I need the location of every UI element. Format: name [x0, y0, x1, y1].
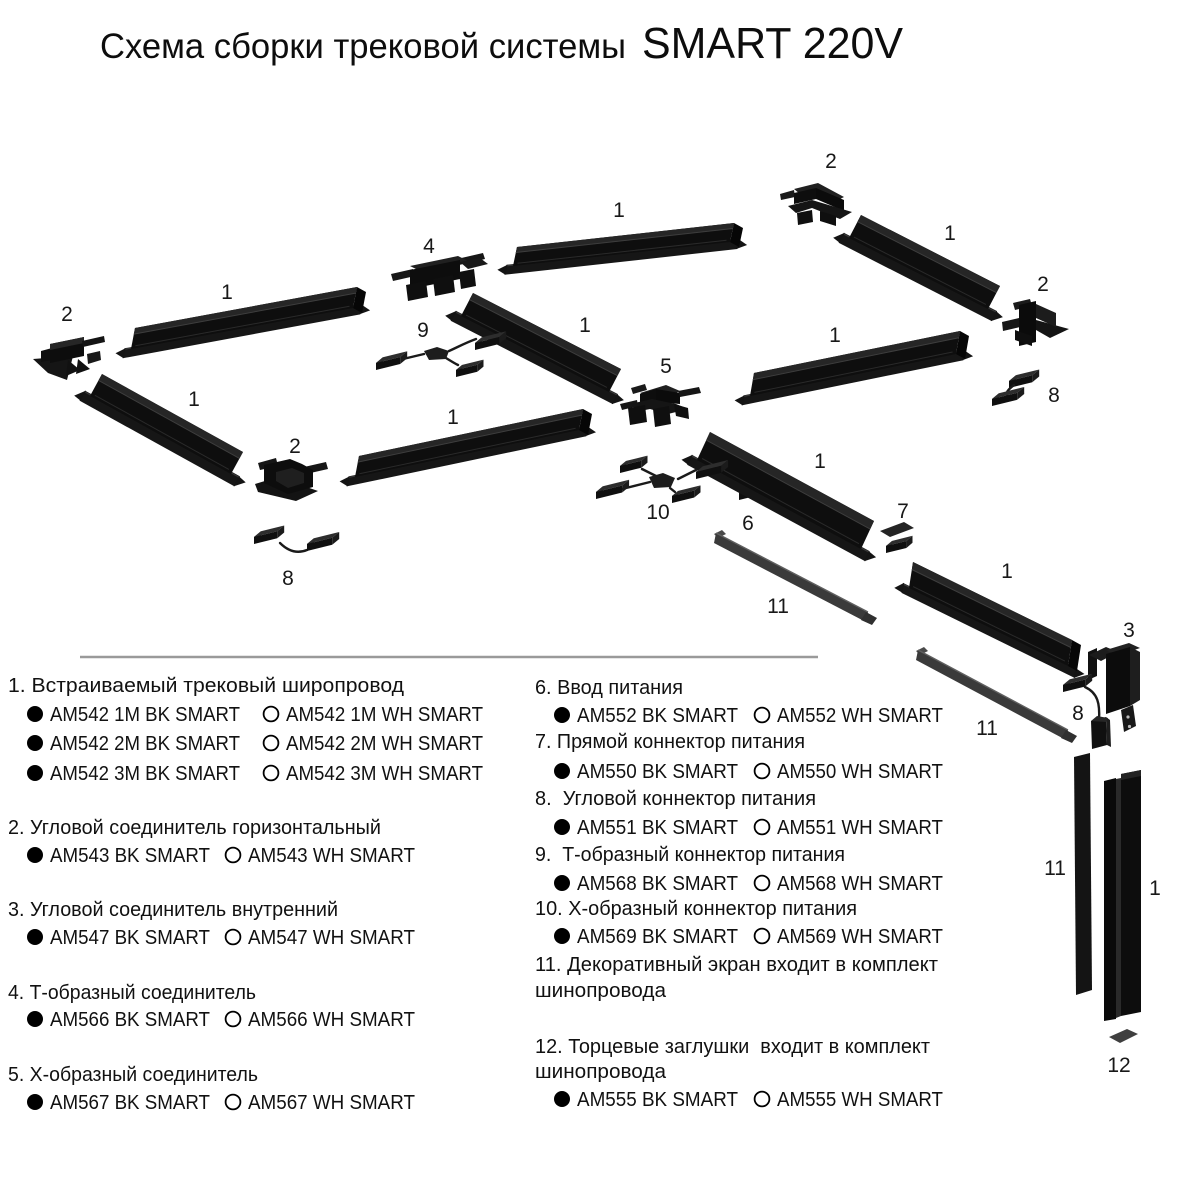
svg-text:AM542 3M BK SMART: AM542 3M BK SMART [50, 763, 240, 785]
svg-text:AM555 BK SMART: AM555 BK SMART [577, 1089, 738, 1111]
svg-text:1: 1 [221, 281, 233, 304]
svg-text:10: 10 [646, 501, 669, 524]
svg-text:2: 2 [1037, 273, 1049, 296]
svg-text:5: 5 [660, 355, 672, 378]
svg-text:AM569 WH SMART: AM569 WH SMART [777, 926, 943, 948]
svg-text:AM566 BK SMART: AM566 BK SMART [50, 1009, 210, 1031]
svg-text:2: 2 [289, 435, 301, 458]
svg-text:8: 8 [1072, 702, 1084, 725]
svg-text:1: 1 [814, 450, 826, 473]
svg-text:10. Х-образный коннектор питан: 10. Х-образный коннектор питания [535, 898, 857, 920]
svg-text:6. Ввод питания: 6. Ввод питания [535, 677, 683, 699]
svg-text:9. Т-образный коннектор питан: 9. Т-образный коннектор питания [535, 844, 845, 866]
svg-text:AM566 WH SMART: AM566 WH SMART [248, 1009, 415, 1031]
svg-text:4: 4 [423, 235, 435, 258]
svg-text:7. Прямой коннектор питания: 7. Прямой коннектор питания [535, 731, 805, 753]
svg-text:AM567 BK SMART: AM567 BK SMART [50, 1092, 210, 1114]
svg-text:1: 1 [188, 388, 200, 411]
svg-text:1: 1 [447, 406, 459, 429]
svg-text:11: 11 [767, 595, 789, 618]
svg-text:8: 8 [1048, 384, 1060, 407]
svg-text:AM543 WH SMART: AM543 WH SMART [248, 845, 415, 867]
svg-text:8: 8 [282, 567, 294, 590]
svg-text:11. Декоративный экран входит: 11. Декоративный экран входит в комплект [535, 954, 938, 976]
svg-text:AM547 BK SMART: AM547 BK SMART [50, 927, 210, 949]
svg-text:Схема сборки трековой системы: Схема сборки трековой системы [100, 27, 626, 66]
svg-text:1. Встраиваемый трековый широп: 1. Встраиваемый трековый широпровод [8, 675, 404, 697]
svg-text:8. Угловой коннектор питания: 8. Угловой коннектор питания [535, 788, 816, 810]
svg-text:4. Т-образный соединитель: 4. Т-образный соединитель [8, 982, 256, 1004]
svg-text:2: 2 [825, 150, 837, 173]
svg-text:5. Х-образный соединитель: 5. Х-образный соединитель [8, 1064, 258, 1086]
svg-text:AM550 WH SMART: AM550 WH SMART [777, 761, 943, 783]
svg-text:1: 1 [1149, 877, 1161, 900]
svg-text:1: 1 [613, 199, 625, 222]
svg-text:2. Угловой соединитель горизон: 2. Угловой соединитель горизонтальный [8, 817, 381, 839]
svg-text:AM551 WH SMART: AM551 WH SMART [777, 817, 943, 839]
svg-text:7: 7 [897, 500, 909, 523]
svg-text:SMART 220V: SMART 220V [642, 19, 904, 68]
svg-text:AM568 BK SMART: AM568 BK SMART [577, 873, 738, 895]
svg-text:AM568 WH SMART: AM568 WH SMART [777, 873, 943, 895]
svg-text:6: 6 [742, 512, 754, 535]
svg-text:AM547 WH SMART: AM547 WH SMART [248, 927, 415, 949]
svg-text:2: 2 [61, 303, 73, 326]
svg-text:AM569 BK SMART: AM569 BK SMART [577, 926, 738, 948]
svg-text:AM542 1M BK SMART: AM542 1M BK SMART [50, 704, 240, 726]
svg-text:9: 9 [417, 319, 429, 342]
svg-text:AM543 BK SMART: AM543 BK SMART [50, 845, 210, 867]
svg-text:AM542 2M BK SMART: AM542 2M BK SMART [50, 733, 240, 755]
svg-text:AM552 BK SMART: AM552 BK SMART [577, 705, 738, 727]
svg-text:1: 1 [1001, 560, 1013, 583]
svg-text:1: 1 [829, 324, 841, 347]
svg-text:AM552 WH SMART: AM552 WH SMART [777, 705, 943, 727]
svg-text:AM542 3M WH SMART: AM542 3M WH SMART [286, 763, 483, 785]
svg-text:AM542 1M WH SMART: AM542 1M WH SMART [286, 704, 483, 726]
svg-text:AM550 BK SMART: AM550 BK SMART [577, 761, 738, 783]
svg-text:1: 1 [579, 314, 591, 337]
svg-text:12. Торцевые заглушки входит: 12. Торцевые заглушки входит в комплект [535, 1036, 930, 1058]
svg-text:AM555 WH SMART: AM555 WH SMART [777, 1089, 943, 1111]
svg-text:3. Угловой соединитель внутрен: 3. Угловой соединитель внутренний [8, 899, 338, 921]
svg-text:AM542 2M WH SMART: AM542 2M WH SMART [286, 733, 483, 755]
svg-text:1: 1 [944, 222, 956, 245]
svg-text:шинопровода: шинопровода [535, 980, 667, 1002]
svg-text:3: 3 [1123, 619, 1135, 642]
svg-text:11: 11 [1044, 857, 1066, 880]
svg-text:11: 11 [976, 717, 998, 740]
svg-text:AM551 BK SMART: AM551 BK SMART [577, 817, 738, 839]
svg-text:AM567 WH SMART: AM567 WH SMART [248, 1092, 415, 1114]
svg-text:шинопровода: шинопровода [535, 1061, 667, 1083]
svg-text:12: 12 [1107, 1054, 1130, 1077]
